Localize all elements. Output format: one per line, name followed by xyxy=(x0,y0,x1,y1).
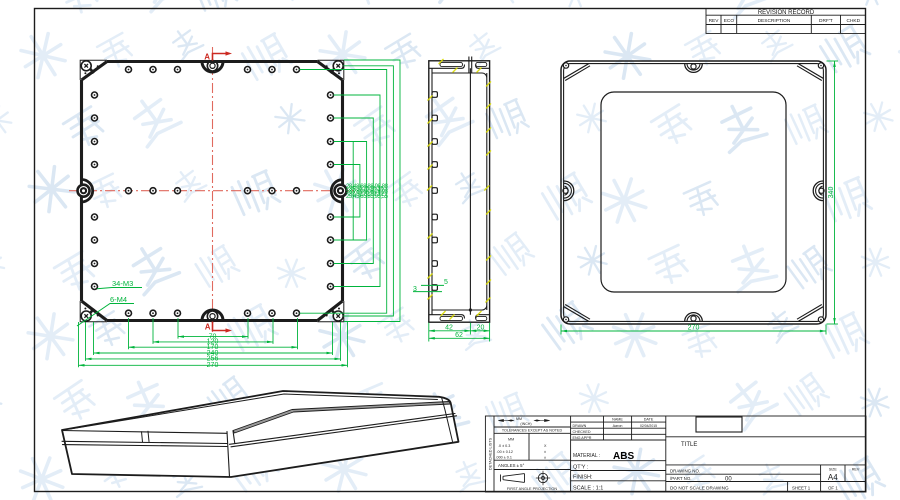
svg-text:/PART NO.: /PART NO. xyxy=(670,476,691,481)
svg-text:ABS: ABS xyxy=(613,451,634,462)
svg-text:.00 ± 0.12: .00 ± 0.12 xyxy=(497,450,513,454)
svg-text:TOLERANCES EXCEPT AS NOTED: TOLERANCES EXCEPT AS NOTED xyxy=(502,429,563,433)
svg-text:DRAWING NO.: DRAWING NO. xyxy=(670,468,700,473)
svg-text:SHEET 1: SHEET 1 xyxy=(792,486,811,491)
svg-text:ANGLES ± 5°: ANGLES ± 5° xyxy=(498,463,525,468)
svg-text:CHECKED: CHECKED xyxy=(573,430,591,434)
svg-text:(INCH): (INCH) xyxy=(520,422,531,426)
svg-text:SIZE: SIZE xyxy=(829,468,838,472)
svg-text:20: 20 xyxy=(477,325,485,332)
svg-text:QT'Y :: QT'Y : xyxy=(573,465,589,471)
svg-text:62: 62 xyxy=(455,332,463,339)
svg-text:5: 5 xyxy=(444,279,448,286)
svg-text:SCALE : 1:1: SCALE : 1:1 xyxy=(573,485,603,491)
svg-text:MM: MM xyxy=(508,438,514,442)
svg-text:ENG APPR: ENG APPR xyxy=(573,436,592,440)
svg-text:Aaron: Aaron xyxy=(613,424,623,428)
svg-text:42: 42 xyxy=(445,325,453,332)
svg-text:.0 ± 0.3: .0 ± 0.3 xyxy=(498,444,510,448)
svg-text:MM: MM xyxy=(516,417,522,421)
svg-text:DATE: DATE xyxy=(644,418,654,422)
svg-text:270: 270 xyxy=(207,362,219,369)
svg-text:ECO: ECO xyxy=(724,18,735,24)
svg-text:A: A xyxy=(204,53,210,62)
svg-text:00: 00 xyxy=(725,477,732,483)
svg-text:A: A xyxy=(205,323,211,332)
svg-text:34-M3: 34-M3 xyxy=(112,279,133,288)
svg-text:±: ± xyxy=(544,450,546,454)
svg-text:02/04/2015: 02/04/2015 xyxy=(640,424,657,428)
svg-text:FIRST ANGLE PROJECTION: FIRST ANGLE PROJECTION xyxy=(507,487,557,491)
svg-text:DO NOT SCALE DRAWING: DO NOT SCALE DRAWING xyxy=(670,486,729,491)
svg-text:270: 270 xyxy=(688,325,700,332)
svg-text:340: 340 xyxy=(828,187,835,199)
svg-text:REV: REV xyxy=(852,468,860,472)
svg-text:A4: A4 xyxy=(828,473,838,482)
svg-text:DETACHED LISTS: DETACHED LISTS xyxy=(489,437,493,470)
svg-text:3: 3 xyxy=(413,286,417,293)
svg-text:.000 ± 0.1: .000 ± 0.1 xyxy=(496,456,512,460)
svg-text:CHKD: CHKD xyxy=(847,18,861,24)
svg-text:DESCRIPTION: DESCRIPTION xyxy=(758,18,791,24)
svg-text:±: ± xyxy=(544,456,546,460)
svg-text:DRAWN: DRAWN xyxy=(573,424,587,428)
svg-text:TITLE: TITLE xyxy=(681,442,697,448)
svg-text:REV: REV xyxy=(709,18,720,24)
svg-text:32,52,72,92,12: 32,52,72,92,12 xyxy=(349,192,385,198)
svg-text:NAME: NAME xyxy=(612,418,623,422)
svg-text:DRF'T: DRF'T xyxy=(819,18,833,24)
svg-text:X: X xyxy=(544,444,547,448)
svg-text:OF 1: OF 1 xyxy=(828,486,838,491)
svg-text:FINISH:: FINISH: xyxy=(573,475,593,481)
svg-text:6-M4: 6-M4 xyxy=(110,295,127,304)
svg-text:REVISION RECORD: REVISION RECORD xyxy=(758,10,815,16)
svg-text:MATERIAL :: MATERIAL : xyxy=(573,453,600,459)
